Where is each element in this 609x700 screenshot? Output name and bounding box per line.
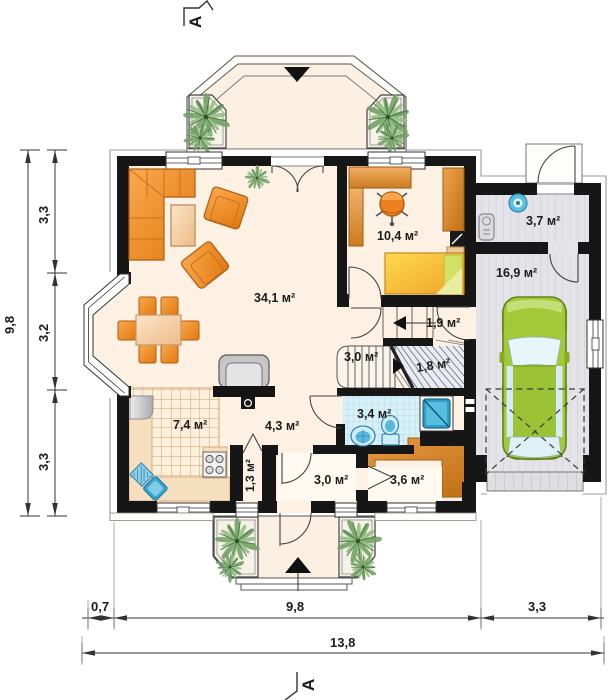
svg-text:16,9 м²: 16,9 м² [496,266,537,280]
svg-text:A: A [299,679,318,691]
svg-text:9,8: 9,8 [2,316,17,334]
svg-text:A: A [186,16,205,28]
svg-text:10,4 м²: 10,4 м² [377,229,418,243]
svg-text:34,1 м²: 34,1 м² [254,291,295,305]
svg-text:1,3 м²: 1,3 м² [243,459,257,492]
svg-text:7,4 м²: 7,4 м² [173,418,207,432]
svg-text:0,7: 0,7 [91,599,109,614]
svg-text:4,3 м²: 4,3 м² [265,419,299,433]
svg-text:3,3: 3,3 [36,206,51,224]
svg-text:13,8: 13,8 [330,635,355,650]
svg-text:3,6 м²: 3,6 м² [390,473,424,487]
svg-text:3,0 м²: 3,0 м² [344,350,378,364]
svg-text:3,4 м²: 3,4 м² [357,407,391,421]
svg-text:3,3: 3,3 [528,599,546,614]
svg-text:3,0 м²: 3,0 м² [314,473,348,487]
svg-text:1,9 м²: 1,9 м² [426,316,460,330]
svg-text:3,2: 3,2 [36,324,51,342]
svg-text:9,8: 9,8 [286,599,304,614]
svg-text:3,3: 3,3 [36,453,51,471]
svg-text:3,7 м²: 3,7 м² [526,214,560,228]
